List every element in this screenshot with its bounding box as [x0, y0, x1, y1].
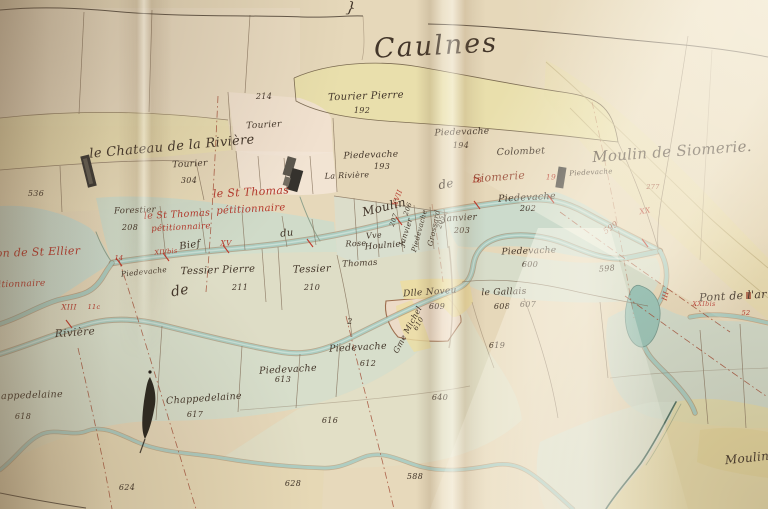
map-label: Colombet — [497, 146, 546, 157]
map-label: 624 — [119, 484, 135, 492]
map-label: Thomas — [342, 259, 378, 269]
map-label: La Rivière — [325, 171, 370, 181]
river-label: de — [170, 283, 190, 300]
map-label: Tessier — [293, 264, 331, 275]
map-label: le Gallais — [481, 288, 527, 299]
map-label: 277 — [646, 184, 659, 191]
place-name: Moulin — [724, 450, 768, 467]
map-label: Chappedelaine — [166, 392, 242, 407]
map-label: 205 — [436, 215, 446, 230]
map-label: 600 — [522, 261, 538, 269]
map-label: Tourier — [172, 160, 208, 171]
station-numeral: 11c — [88, 304, 101, 311]
map-label: Piedevache — [121, 266, 168, 278]
map-label: 211 — [232, 284, 248, 292]
map-label: 619 — [489, 342, 505, 350]
station-numeral: XIVbis — [154, 248, 178, 257]
petitioner-annotation: titionnaire — [0, 280, 46, 291]
canal-label: de — [437, 177, 454, 191]
map-label: 206 — [403, 202, 414, 217]
map-label: Janvier — [443, 214, 478, 225]
station-numeral: XX — [639, 206, 651, 215]
station-numeral: 14 — [115, 255, 124, 262]
map-label: 2 — [347, 318, 352, 326]
map-label: Piedevache — [411, 209, 429, 253]
map-label: 618 — [15, 413, 31, 421]
station-numeral: 19 — [546, 173, 556, 181]
river-label: Rivière — [55, 326, 96, 339]
map-label: 628 — [285, 480, 301, 488]
map-label: 208 — [122, 224, 138, 232]
map-label: 599 — [602, 220, 620, 236]
map-label: 214 — [256, 93, 272, 101]
map-label: 608 — [494, 303, 510, 311]
map-label: 210 — [304, 284, 320, 292]
map-labels-layer: Caulnes}Moulin de Siomerie.le Chateau de… — [0, 0, 768, 509]
petitioner-annotation: pétitionnaire — [151, 222, 211, 234]
petitioner-annotation: on de St Ellier — [0, 245, 80, 259]
map-label: Vve — [366, 231, 383, 240]
map-label: 598 — [599, 264, 616, 273]
station-numeral: 18 — [472, 176, 482, 184]
petitioner-annotation: le St Thomas — [213, 185, 290, 200]
map-label: 613 — [275, 376, 291, 384]
map-label: Rose — [345, 239, 366, 248]
map-label: Piedevache — [498, 192, 556, 205]
map-label: 192 — [354, 107, 370, 115]
cadastral-map-photo: Caulnes}Moulin de Siomerie.le Chateau de… — [0, 0, 768, 509]
map-label: Piedevache — [501, 247, 556, 258]
place-name: le Chateau de la Rivière — [89, 133, 255, 160]
map-label: 202 — [520, 205, 536, 213]
map-label: 609 — [429, 303, 445, 311]
map-label: Piedevache — [569, 168, 613, 177]
petitioner-annotation: pétitionnaire — [216, 203, 286, 217]
place-name: Pont de l'ar — [699, 289, 767, 304]
map-label: 607 — [520, 301, 536, 309]
petitioner-annotation: le St Thomas — [144, 209, 211, 222]
station-numeral: XV — [220, 239, 231, 247]
map-label: 588 — [407, 473, 423, 481]
map-label: Dlle Noveu — [403, 287, 457, 300]
map-label: Piedevache — [434, 128, 489, 139]
map-label: 612 — [360, 360, 376, 368]
canal-label: du — [280, 228, 294, 239]
station-numeral: 52 — [742, 310, 751, 317]
map-label: Tourier Pierre — [328, 91, 404, 104]
map-label: 203 — [454, 227, 470, 235]
map-label: 640 — [432, 394, 448, 402]
map-label: 207 — [389, 213, 399, 228]
station-numeral: XIII — [61, 303, 76, 311]
map-label: Houlnier — [364, 240, 405, 252]
place-name: Moulin de Siomerie. — [592, 139, 753, 165]
map-label: 304 — [181, 177, 197, 185]
margin-mark: } — [345, 0, 357, 16]
map-label: Tessier Pierre — [181, 265, 256, 278]
map-label: 616 — [322, 417, 338, 425]
map-label: Piedevache — [329, 342, 387, 355]
map-label: 536 — [28, 190, 44, 198]
map-label: 193 — [374, 163, 390, 171]
canal-label: Bief — [179, 240, 202, 253]
station-numeral: III — [661, 291, 670, 302]
map-label: 194 — [453, 142, 469, 150]
map-label: Tourier — [246, 121, 282, 132]
map-label: 617 — [187, 411, 203, 419]
map-title: Caulnes — [373, 29, 498, 62]
map-label: Piedevache — [343, 151, 398, 162]
map-label: Chappedelaine — [0, 390, 63, 402]
